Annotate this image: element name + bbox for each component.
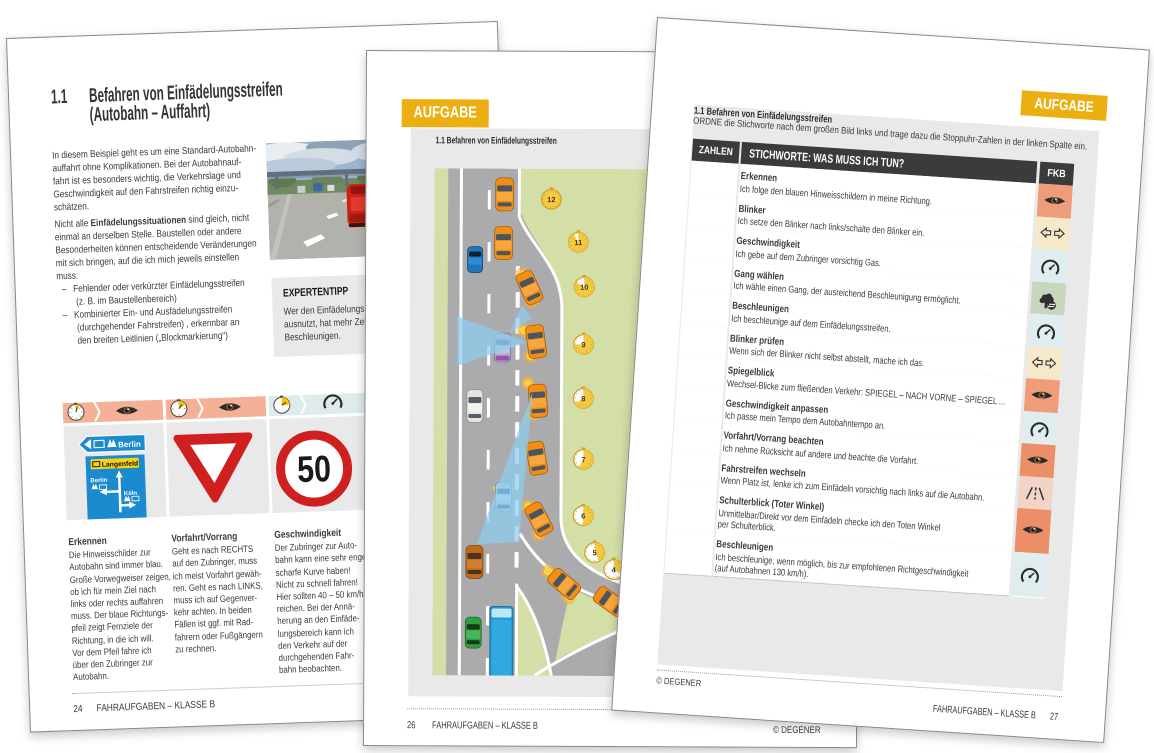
svg-text:Langenfeld: Langenfeld bbox=[102, 460, 138, 468]
svg-text:50: 50 bbox=[297, 448, 332, 491]
svg-text:10: 10 bbox=[580, 283, 588, 292]
svg-text:7: 7 bbox=[581, 455, 585, 464]
svg-text:Berlin: Berlin bbox=[118, 440, 141, 450]
svg-text:5: 5 bbox=[593, 548, 597, 557]
svg-text:8: 8 bbox=[581, 394, 585, 403]
svg-text:12: 12 bbox=[547, 195, 555, 204]
svg-text:Berlin: Berlin bbox=[90, 478, 108, 485]
svg-text:6: 6 bbox=[581, 512, 585, 521]
svg-text:11: 11 bbox=[574, 238, 582, 247]
svg-text:9: 9 bbox=[581, 340, 585, 349]
